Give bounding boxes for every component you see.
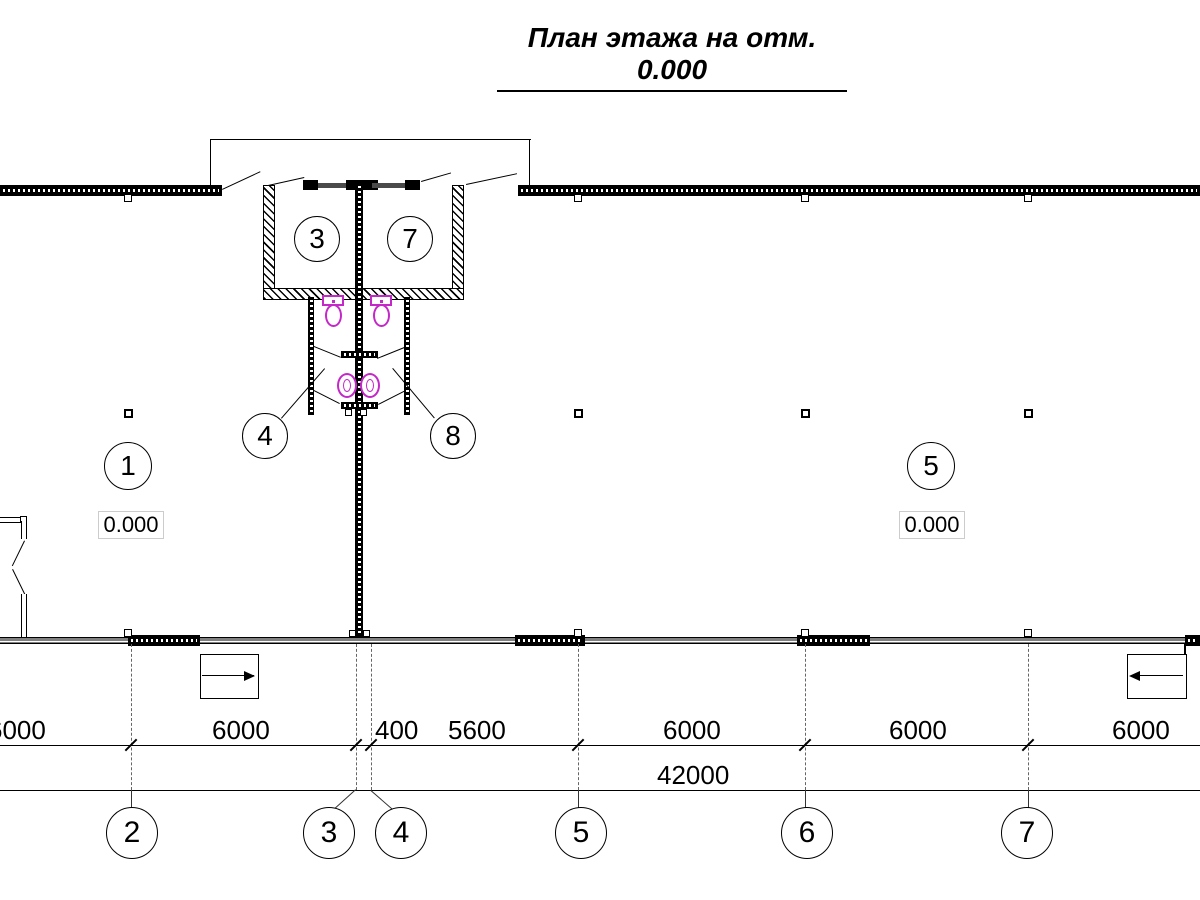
dimension-label-1: 6000 [212, 717, 270, 743]
wall-block-1 [303, 180, 318, 190]
canopy-right-line [529, 139, 530, 188]
toilet-icon-2-dot [380, 300, 383, 303]
grid-stem-7 [1028, 790, 1029, 808]
wall-hatched-bottom [263, 288, 464, 300]
elevation-right-value: 0.000 [904, 512, 959, 538]
column-marker-bottom-6 [801, 629, 809, 637]
wall-stub-upper [341, 351, 378, 358]
grid-bubble-3-label: 3 [321, 816, 338, 850]
elevation-label-right: 0.000 [899, 511, 965, 539]
wall-hatched-left [263, 185, 275, 299]
grid-bubble-6-label: 6 [799, 816, 816, 850]
column-marker-bottom-7 [1024, 629, 1032, 637]
room-tag-3-label: 3 [309, 223, 325, 255]
room-tag-3: 3 [294, 216, 340, 262]
column-marker-bottom-2 [124, 629, 132, 637]
dimension-label-4: 6000 [663, 717, 721, 743]
dimension-label-6: 6000 [1112, 717, 1170, 743]
grid-bubble-3: 3 [303, 807, 355, 859]
door-swing-entrance-right [466, 173, 517, 185]
column-marker-bottom-4 [363, 630, 370, 637]
grid-bubble-7: 7 [1001, 807, 1053, 859]
wall-top-right [518, 185, 1200, 196]
room-tag-5-label: 5 [923, 450, 939, 482]
elevation-label-left: 0.000 [98, 511, 164, 539]
grid-extension-4 [371, 644, 372, 790]
dimension-line-segments [0, 745, 1200, 746]
window-band-right [372, 183, 405, 188]
arrow-left-icon [1129, 671, 1140, 681]
room-tag-1: 1 [104, 442, 152, 490]
door-swing-vestibule-1 [12, 541, 25, 567]
sink-icon-2-basin [366, 379, 374, 392]
grid-extension-6 [805, 644, 806, 790]
column-marker-mid-6 [801, 409, 810, 418]
dimension-label-total: 42000 [657, 762, 729, 788]
grid-stem-5 [578, 790, 579, 808]
grid-stem-6 [805, 790, 806, 808]
arrow-right-icon [244, 671, 255, 681]
wall-vestibule-upper [21, 521, 27, 539]
grid-stem-2 [131, 790, 132, 808]
sink-icon-2 [360, 373, 380, 398]
grid-bubble-2-label: 2 [124, 816, 141, 850]
room-tag-8-label: 8 [445, 420, 461, 452]
room-tag-7-label: 7 [402, 223, 418, 255]
column-marker-mid-5 [574, 409, 583, 418]
door-swing-wc-3 [314, 390, 340, 404]
column-marker-top-6 [801, 194, 809, 202]
grid-bubble-7-label: 7 [1019, 816, 1036, 850]
sink-icon-1-basin [343, 379, 351, 392]
sink-icon-1 [337, 373, 357, 398]
dimension-label-3: 5600 [448, 717, 506, 743]
grid-stem-3 [333, 789, 356, 810]
grid-extension-3 [356, 644, 357, 790]
room-tag-8: 8 [430, 413, 476, 459]
grid-extension-5 [578, 644, 579, 790]
grid-extension-7 [1028, 644, 1029, 790]
elevation-left-value: 0.000 [103, 512, 158, 538]
room-tag-4: 4 [242, 413, 288, 459]
wall-block-3 [405, 180, 420, 190]
door-frame-mark-1 [345, 409, 352, 416]
ramp-right-wall-edge [1184, 644, 1186, 655]
room-tag-7: 7 [387, 216, 433, 262]
wall-bottom-panel-1 [128, 635, 200, 646]
window-band-left [318, 183, 348, 188]
door-swing-wc-2 [377, 347, 404, 359]
dimension-label-0: 6000 [0, 717, 46, 743]
toilet-icon-1-dot [332, 300, 335, 303]
wall-wc-right [404, 297, 410, 415]
dimension-label-5: 6000 [889, 717, 947, 743]
column-marker-top-2 [124, 194, 132, 202]
grid-bubble-6: 6 [781, 807, 833, 859]
wall-bottom-panel-4 [1185, 635, 1200, 646]
column-marker-mid-7 [1024, 409, 1033, 418]
canopy-top-line [210, 139, 531, 140]
column-marker-top-5 [574, 194, 582, 202]
grid-bubble-2: 2 [106, 807, 158, 859]
room-tag-1-label: 1 [120, 450, 136, 482]
column-marker-bottom-3 [349, 630, 356, 637]
wall-vestibule-lower [21, 594, 27, 637]
door-swing-wc-1 [314, 346, 341, 358]
toilet-icon-1-bowl [325, 304, 342, 327]
toilet-icon-2-bowl [373, 304, 390, 327]
grid-bubble-5: 5 [555, 807, 607, 859]
door-swing-vestibule-2 [12, 569, 25, 595]
room-tag-5: 5 [907, 442, 955, 490]
door-swing-entrance-left [222, 171, 260, 190]
drawing-title: План этажа на отм. 0.000 [497, 22, 847, 92]
grid-bubble-5-label: 5 [573, 816, 590, 850]
floor-plan-canvas: План этажа на отм. 0.000 3 7 [0, 0, 1200, 900]
canopy-left-line [210, 139, 211, 186]
grid-bubble-4-label: 4 [393, 816, 410, 850]
room-tag-4-label: 4 [257, 420, 273, 452]
column-marker-bottom-5 [574, 629, 582, 637]
wall-hatched-right [452, 185, 464, 299]
door-frame-mark-2 [360, 409, 367, 416]
wall-stub-lower [341, 402, 378, 409]
grid-bubble-4: 4 [375, 807, 427, 859]
column-marker-mid-2 [124, 409, 133, 418]
wall-wc-left [308, 297, 314, 415]
grid-extension-2 [131, 644, 132, 790]
wall-top-left [0, 185, 222, 196]
door-swing-room7 [421, 172, 451, 182]
dimension-label-2: 400 [375, 717, 418, 743]
dimension-line-total [0, 790, 1200, 791]
door-swing-wc-4 [378, 391, 404, 405]
column-marker-top-7 [1024, 194, 1032, 202]
